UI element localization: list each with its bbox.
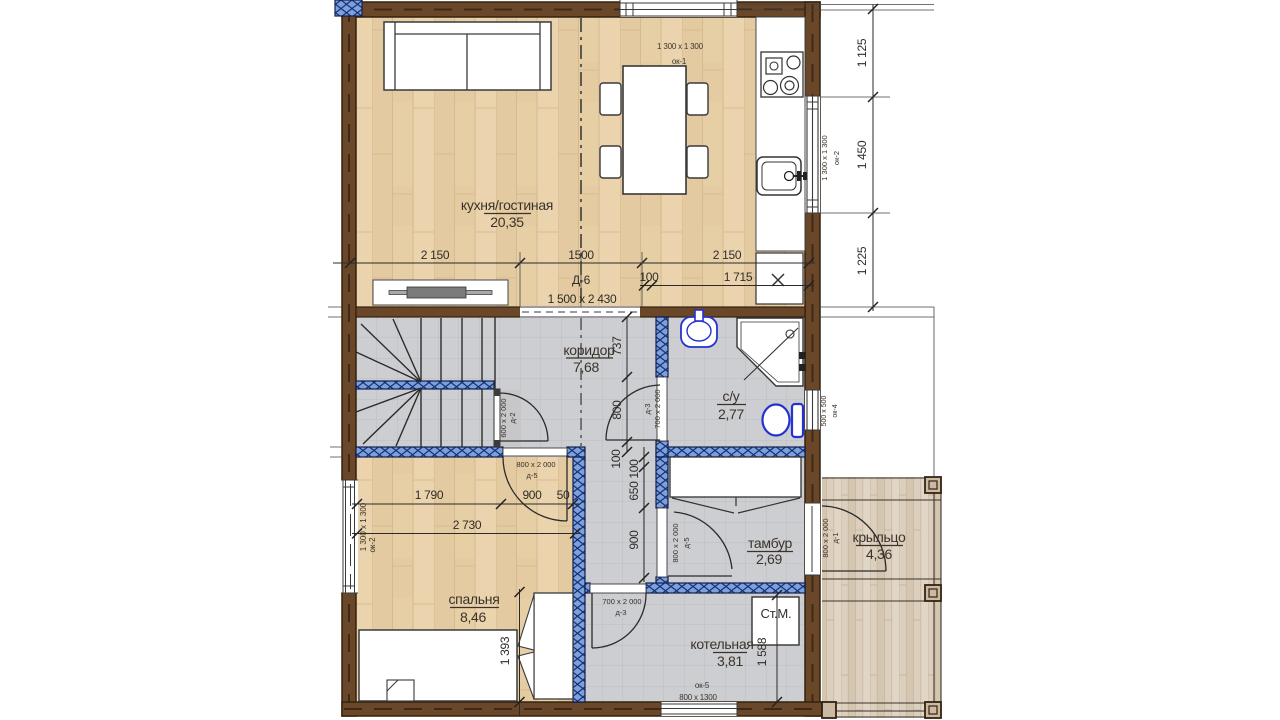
svg-text:800 х 1300: 800 х 1300 bbox=[679, 693, 717, 702]
svg-text:крыльцо: крыльцо bbox=[853, 529, 906, 545]
svg-text:1 715: 1 715 bbox=[724, 270, 753, 284]
svg-text:800: 800 bbox=[610, 400, 624, 420]
svg-text:кухня/гостиная: кухня/гостиная bbox=[461, 197, 553, 213]
svg-text:500 х 500: 500 х 500 bbox=[821, 396, 828, 427]
svg-text:1500: 1500 bbox=[568, 248, 594, 262]
svg-text:2 150: 2 150 bbox=[421, 248, 450, 262]
svg-text:д-3: д-3 bbox=[643, 403, 652, 414]
svg-text:737: 737 bbox=[610, 336, 624, 356]
svg-text:2,77: 2,77 bbox=[718, 406, 745, 422]
svg-text:2 730: 2 730 bbox=[453, 518, 482, 532]
svg-text:800 х 2 000: 800 х 2 000 bbox=[671, 523, 680, 562]
svg-text:д-2: д-2 bbox=[508, 412, 517, 423]
svg-text:ок-4: ок-4 bbox=[832, 404, 839, 417]
svg-text:100: 100 bbox=[609, 449, 623, 469]
svg-text:100: 100 bbox=[627, 459, 641, 479]
svg-text:д-3: д-3 bbox=[615, 608, 626, 617]
svg-text:100: 100 bbox=[639, 270, 659, 284]
svg-text:1 393: 1 393 bbox=[498, 636, 512, 665]
svg-text:1 225: 1 225 bbox=[855, 246, 869, 275]
svg-text:600 х 2 000: 600 х 2 000 bbox=[499, 398, 508, 437]
svg-text:1 125: 1 125 bbox=[855, 38, 869, 67]
svg-text:8,46: 8,46 bbox=[460, 609, 487, 625]
svg-text:50: 50 bbox=[557, 488, 570, 502]
svg-text:д-5: д-5 bbox=[526, 471, 537, 480]
svg-text:1 790: 1 790 bbox=[415, 488, 444, 502]
svg-text:800 х 2 000: 800 х 2 000 bbox=[516, 460, 555, 469]
svg-text:ок-1: ок-1 bbox=[672, 57, 687, 66]
svg-text:Ст.М.: Ст.М. bbox=[761, 606, 792, 621]
svg-text:Д-6: Д-6 bbox=[572, 273, 591, 287]
svg-text:1 588: 1 588 bbox=[755, 637, 769, 666]
svg-text:1 300 х 1 300: 1 300 х 1 300 bbox=[657, 42, 704, 51]
svg-text:1 500 х 2 430: 1 500 х 2 430 bbox=[548, 292, 617, 306]
svg-text:2,69: 2,69 bbox=[756, 551, 783, 567]
svg-text:800 х 2 000: 800 х 2 000 bbox=[821, 518, 830, 557]
svg-text:900: 900 bbox=[522, 488, 542, 502]
svg-text:1 300 х 1 300: 1 300 х 1 300 bbox=[359, 502, 368, 551]
svg-text:спальня: спальня bbox=[448, 591, 499, 607]
svg-text:1 450: 1 450 bbox=[855, 140, 869, 169]
svg-text:ок-5: ок-5 bbox=[695, 681, 710, 690]
svg-text:тамбур: тамбур bbox=[748, 535, 793, 551]
svg-text:7,68: 7,68 bbox=[573, 359, 600, 375]
svg-text:ок-2: ок-2 bbox=[832, 151, 841, 165]
svg-text:700 х 2 000: 700 х 2 000 bbox=[602, 597, 641, 606]
svg-text:650: 650 bbox=[627, 481, 641, 501]
svg-text:1 300 х 1 300: 1 300 х 1 300 bbox=[820, 135, 829, 180]
svg-text:с/у: с/у bbox=[723, 388, 740, 404]
svg-text:2 150: 2 150 bbox=[713, 248, 742, 262]
svg-text:900: 900 bbox=[627, 530, 641, 550]
svg-text:3,81: 3,81 bbox=[717, 653, 744, 669]
svg-text:д-5: д-5 bbox=[682, 537, 691, 548]
svg-text:котельная: котельная bbox=[690, 636, 753, 652]
svg-text:20,35: 20,35 bbox=[490, 214, 524, 230]
svg-text:д-1: д-1 bbox=[831, 532, 840, 543]
svg-text:коридор: коридор bbox=[563, 342, 615, 358]
svg-text:700 х 2 000: 700 х 2 000 bbox=[653, 389, 662, 428]
svg-text:ок-2: ок-2 bbox=[368, 537, 377, 553]
svg-text:4,36: 4,36 bbox=[866, 546, 893, 562]
